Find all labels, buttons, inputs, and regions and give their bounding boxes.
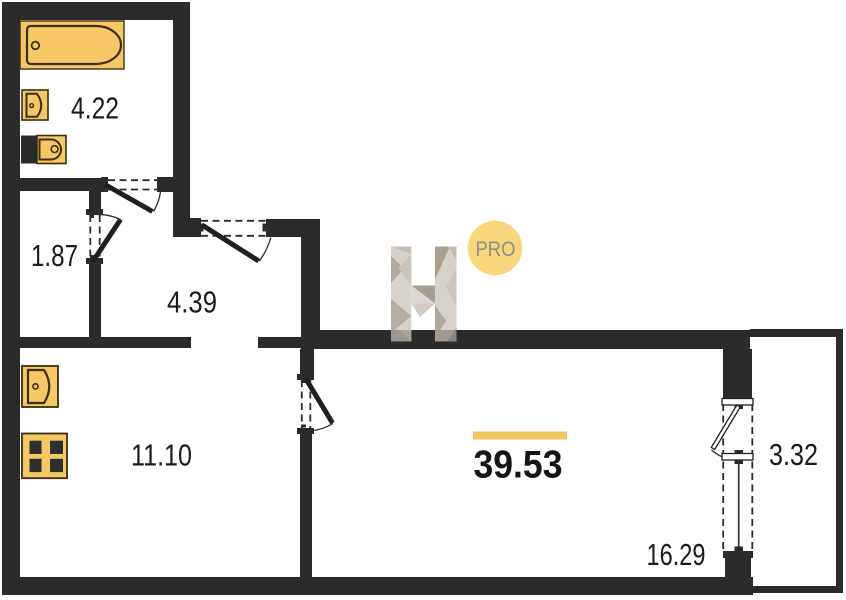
- svg-text:11.10: 11.10: [131, 438, 192, 473]
- svg-text:PRO: PRO: [476, 238, 516, 261]
- svg-text:4.39: 4.39: [167, 285, 217, 320]
- svg-text:4.22: 4.22: [71, 91, 119, 126]
- svg-text:16.29: 16.29: [647, 537, 706, 572]
- svg-text:3.32: 3.32: [769, 437, 818, 472]
- svg-text:1.87: 1.87: [31, 238, 78, 273]
- svg-text:39.53: 39.53: [474, 444, 563, 487]
